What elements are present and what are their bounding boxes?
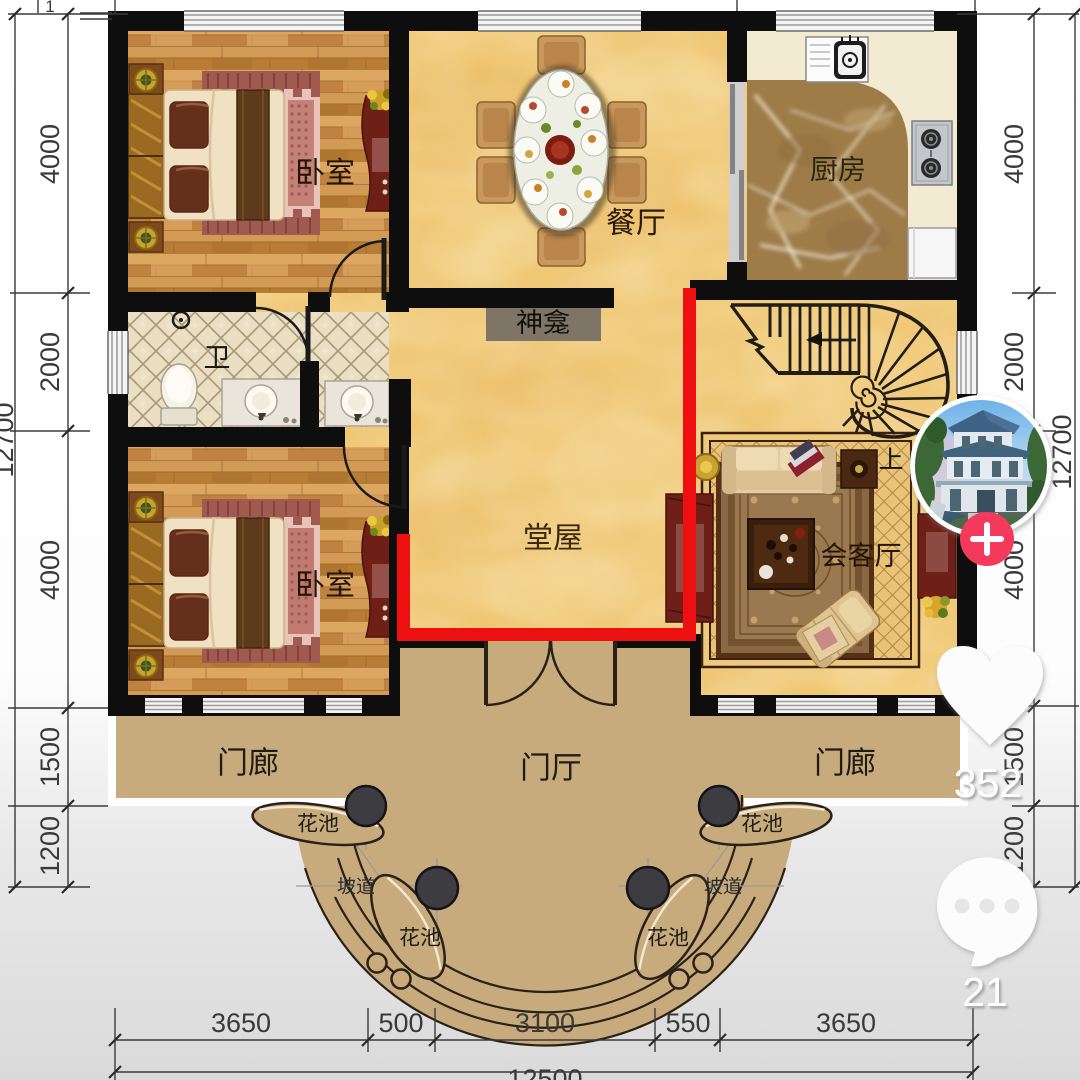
svg-text:3100: 3100: [515, 1008, 575, 1038]
svg-text:1500: 1500: [35, 727, 65, 787]
svg-text:12700: 12700: [1047, 414, 1077, 489]
svg-text:500: 500: [378, 1008, 423, 1038]
svg-text:550: 550: [665, 1008, 710, 1038]
svg-text:3650: 3650: [211, 1008, 271, 1038]
svg-text:12700: 12700: [0, 402, 19, 477]
svg-text:4000: 4000: [35, 124, 65, 184]
svg-text:2000: 2000: [999, 332, 1029, 392]
svg-text:2000: 2000: [35, 332, 65, 392]
svg-text:3650: 3650: [816, 1008, 876, 1038]
svg-text:1: 1: [45, 0, 54, 16]
svg-text:4000: 4000: [999, 124, 1029, 184]
svg-text:12500: 12500: [507, 1064, 582, 1080]
svg-text:1200: 1200: [35, 816, 65, 876]
svg-text:21: 21: [962, 969, 1008, 1015]
svg-text:4000: 4000: [35, 540, 65, 600]
svg-text:352: 352: [954, 760, 1022, 806]
